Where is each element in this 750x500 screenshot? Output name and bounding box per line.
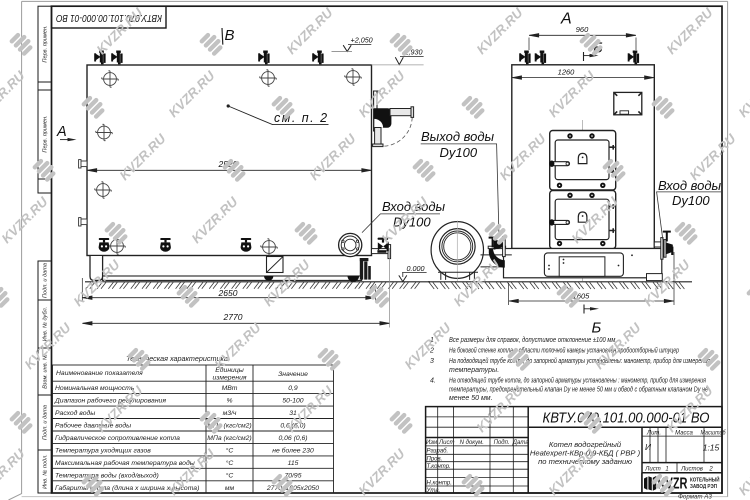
svg-text:МПа (кгс/см2): МПа (кгс/см2) (207, 435, 251, 442)
svg-text:Все размеры для справок, допус: Все размеры для справок, допустимое откл… (449, 336, 617, 344)
svg-text:Подп. и дата: Подп. и дата (43, 263, 49, 298)
svg-text:В: В (225, 27, 235, 44)
svg-text:м3/ч: м3/ч (223, 410, 237, 417)
svg-text:Температура уходящих газов: Температура уходящих газов (55, 447, 151, 455)
svg-text:1:15: 1:15 (703, 443, 720, 453)
svg-text:°С: °С (226, 472, 234, 480)
svg-text:Гидравлическое сопротивление к: Гидравлическое сопротивление котла (55, 434, 180, 442)
svg-text:мм: мм (225, 485, 235, 492)
svg-text:Dy100: Dy100 (440, 145, 478, 160)
svg-text:Dy100: Dy100 (672, 193, 710, 208)
svg-text:КВТУ.070.101.00.000-01 ВО: КВТУ.070.101.00.000-01 ВО (56, 12, 162, 23)
svg-text:Лит.: Лит. (646, 430, 661, 436)
svg-text:На отводящей трубе котла, до з: На отводящей трубе котла, до запорной ар… (449, 377, 706, 385)
svg-text:2650: 2650 (218, 288, 238, 298)
svg-text:Н.контр.: Н.контр. (427, 480, 452, 486)
svg-text:менее 50 мм.: менее 50 мм. (449, 395, 493, 402)
svg-text:На подводящей трубе котла, д: На подводящей трубе котла, до запорной а… (449, 357, 710, 365)
svg-text:А: А (56, 124, 67, 140)
svg-text:измерения: измерения (212, 375, 246, 382)
svg-text:Наименование показателя: Наименование показателя (56, 370, 143, 377)
svg-text:температуры.: температуры. (449, 367, 499, 374)
svg-text:Значение: Значение (278, 371, 308, 378)
svg-text:Подп.: Подп. (494, 440, 510, 446)
svg-text:Перв. примен.: Перв. примен. (43, 115, 49, 152)
svg-text:Б: Б (592, 320, 602, 337)
svg-text:Вход воды: Вход воды (658, 178, 722, 193)
svg-text:Утв.: Утв. (426, 488, 441, 494)
svg-text:Подп. и дата: Подп. и дата (43, 405, 49, 440)
svg-text:Максимальная рабочая температу: Максимальная рабочая температура воды (55, 459, 195, 467)
svg-text:МВт: МВт (222, 385, 238, 392)
svg-text:N докум.: N докум. (460, 440, 484, 446)
svg-text:Изм.: Изм. (426, 440, 439, 446)
svg-text:Лист: Лист (644, 466, 660, 472)
svg-text:Номинальная мощность: Номинальная мощность (55, 385, 135, 392)
svg-text:На боковой стенке котла в обла: На боковой стенке котла в области топочн… (449, 347, 679, 355)
svg-text:0.000: 0.000 (407, 264, 425, 273)
svg-text:0,06 (0,6): 0,06 (0,6) (278, 435, 307, 442)
svg-text:960: 960 (576, 25, 589, 34)
svg-text:°С: °С (226, 459, 234, 467)
svg-text:Лист: Лист (438, 440, 454, 446)
svg-text:Формат А3: Формат А3 (678, 494, 712, 500)
svg-text:Выход воды: Выход воды (421, 129, 495, 144)
svg-text:Температура воды (вход/выход): Температура воды (вход/выход) (55, 472, 159, 480)
svg-text:Дата: Дата (512, 440, 529, 446)
svg-text:+2,050: +2,050 (351, 36, 373, 45)
svg-text:КОТЕЛЬНЫЙ: КОТЕЛЬНЫЙ (690, 476, 720, 484)
svg-text:Масштаб: Масштаб (701, 430, 727, 436)
svg-text:2770: 2770 (223, 312, 243, 322)
svg-text:°С: °С (226, 447, 234, 455)
svg-text:%: % (226, 398, 232, 405)
svg-text:А: А (560, 11, 572, 28)
svg-text:Диапазон рабочего регулировани: Диапазон рабочего регулирования (54, 397, 166, 405)
svg-text:И: И (645, 442, 652, 452)
svg-text:Расход воды: Расход воды (55, 409, 95, 417)
svg-text:Инв. № подл.: Инв. № подл. (43, 454, 49, 489)
svg-text:Разраб.: Разраб. (427, 449, 449, 455)
svg-text:Перв. примен.: Перв. примен. (43, 25, 49, 62)
svg-text:50-100: 50-100 (282, 398, 303, 405)
svg-text:1: 1 (665, 466, 668, 472)
svg-text:2: 2 (708, 466, 713, 472)
svg-text:не более 230: не более 230 (272, 447, 314, 455)
svg-text:Листов: Листов (680, 466, 703, 472)
svg-text:115: 115 (288, 460, 299, 467)
svg-text:1260: 1260 (558, 67, 576, 76)
svg-text:ЗАВОД РЭП: ЗАВОД РЭП (690, 484, 717, 490)
svg-text:Рабочее давление воды: Рабочее давление воды (55, 422, 131, 430)
svg-text:Т.контр.: Т.контр. (427, 464, 451, 470)
svg-text:температуры, предохранительный: температуры, предохранительный клапан Dу… (449, 386, 708, 394)
svg-text:3: 3 (430, 358, 434, 365)
svg-text:4.: 4. (430, 378, 436, 385)
svg-text:Пров.: Пров. (427, 457, 443, 463)
svg-text:0,9: 0,9 (288, 385, 298, 392)
